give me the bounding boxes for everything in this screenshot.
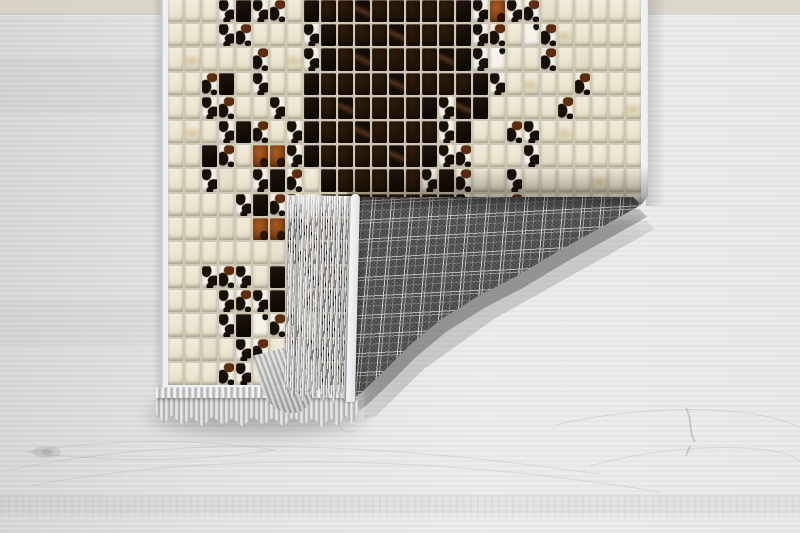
leather-tile-dark <box>422 73 437 95</box>
leather-tile-cream <box>253 97 268 119</box>
leather-tile-dark <box>406 97 421 119</box>
leather-tile-dark <box>439 24 454 46</box>
leather-tile-cream <box>202 290 217 312</box>
leather-tile-cream <box>626 121 641 143</box>
leather-tile-cream <box>168 48 183 70</box>
leather-tile-cream <box>592 0 607 22</box>
leather-tile-dark <box>321 73 336 95</box>
leather-tile-dark <box>422 48 437 70</box>
leather-tile-spotB <box>219 97 234 119</box>
leather-tile-black <box>202 145 217 167</box>
leather-tile-spotA <box>253 290 268 312</box>
leather-tile-cream <box>168 0 183 22</box>
leather-tile-cream <box>168 290 183 312</box>
leather-tile-cream <box>185 266 200 288</box>
leather-tile-cream <box>185 73 200 95</box>
leather-tile-cream <box>270 121 285 143</box>
leather-tile-cream <box>541 73 556 95</box>
leather-tile-dark <box>355 24 370 46</box>
leather-tile-black <box>304 145 319 167</box>
leather-tile-cream <box>626 24 641 46</box>
leather-tile-dark <box>456 73 471 95</box>
leather-tile-cream2 <box>575 48 590 70</box>
leather-tile-streak <box>338 97 353 119</box>
leather-tile-cream <box>507 48 522 70</box>
leather-tile-cream <box>609 0 624 22</box>
leather-tile-cream <box>202 218 217 240</box>
leather-tile-cream <box>202 121 217 143</box>
leather-tile-dark <box>406 24 421 46</box>
leather-tile-cream <box>202 194 217 216</box>
leather-tile-cream <box>168 145 183 167</box>
leather-tile-spotB <box>541 24 556 46</box>
leather-tile-cream <box>185 0 200 22</box>
leather-tile-spotA <box>236 194 251 216</box>
leather-tile-brown <box>253 218 268 240</box>
leather-tile-dark <box>338 73 353 95</box>
leather-tile-spotA <box>270 97 285 119</box>
leather-tile-black <box>304 73 319 95</box>
leather-tile-black <box>236 121 251 143</box>
leather-tile-dark <box>406 145 421 167</box>
leather-tile-cream <box>185 194 200 216</box>
leather-tile-cream <box>287 97 302 119</box>
leather-tile-cream <box>270 24 285 46</box>
leather-tile-cream <box>592 24 607 46</box>
leather-tile-cream <box>168 266 183 288</box>
rug-right-edge-shadow <box>646 0 666 206</box>
leather-tile-cream <box>185 290 200 312</box>
leather-tile-dark <box>372 24 387 46</box>
leather-tile-spotA <box>304 24 319 46</box>
leather-tile-cream <box>558 145 573 167</box>
leather-tile-dark <box>406 73 421 95</box>
leather-tile-cream <box>253 242 268 264</box>
leather-tile-streak <box>355 48 370 70</box>
leather-tile-spotA <box>202 169 217 191</box>
leather-tile-black <box>304 121 319 143</box>
leather-tile-spotB <box>541 48 556 70</box>
leather-tile-cream <box>524 97 539 119</box>
leather-tile-cream <box>168 24 183 46</box>
leather-tile-cream2 <box>219 169 234 191</box>
leather-tile-cream <box>202 48 217 70</box>
leather-tile-spotB <box>456 145 471 167</box>
leather-tile-streak <box>439 48 454 70</box>
leather-tile-cream <box>626 48 641 70</box>
leather-tile-spotA <box>219 121 234 143</box>
leather-tile-spotA <box>253 0 268 22</box>
leather-tile-cream <box>168 194 183 216</box>
leather-tile-dark <box>372 97 387 119</box>
leather-tile-spotA <box>202 266 217 288</box>
leather-tile-white <box>253 314 268 336</box>
leather-tile-black <box>456 24 471 46</box>
leather-tile-streak <box>389 24 404 46</box>
leather-tile-dark <box>439 0 454 22</box>
leather-tile-cream <box>202 314 217 336</box>
leather-tile-brown <box>270 218 285 240</box>
leather-tile-spotA <box>473 24 488 46</box>
leather-tile-cream <box>219 48 234 70</box>
leather-tile-spotA <box>287 121 302 143</box>
leather-tile-cream <box>592 73 607 95</box>
leather-tile-cream2 <box>541 0 556 22</box>
leather-tile-spotA <box>304 48 319 70</box>
leather-tile-cream <box>304 169 319 191</box>
leather-tile-dark <box>372 73 387 95</box>
leather-tile-cream <box>185 242 200 264</box>
leather-tile-cream <box>473 145 488 167</box>
leather-tile-spotA <box>439 121 454 143</box>
leather-tile-dark <box>372 145 387 167</box>
leather-tile-cream <box>609 121 624 143</box>
leather-tile-cream <box>507 145 522 167</box>
leather-tile-cream <box>473 121 488 143</box>
leather-tile-cream <box>185 218 200 240</box>
leather-tile-spotA <box>202 97 217 119</box>
leather-tile-white <box>524 24 539 46</box>
leather-tile-cream <box>507 97 522 119</box>
leather-tile-spotB <box>253 121 268 143</box>
leather-tile-cream <box>185 339 200 361</box>
leather-tile-dark <box>372 48 387 70</box>
leather-tile-black <box>422 145 437 167</box>
leather-tile-cream <box>626 145 641 167</box>
leather-tile-spotB <box>253 48 268 70</box>
leather-tile-dark <box>406 48 421 70</box>
leather-tile-spotA <box>219 24 234 46</box>
leather-tile-cream2 <box>541 145 556 167</box>
leather-tile-cream <box>592 97 607 119</box>
leather-tile-black <box>304 97 319 119</box>
leather-tile-spotB <box>490 24 505 46</box>
leather-tile-dark <box>389 0 404 22</box>
leather-tile-cream <box>253 24 268 46</box>
leather-tile-cream <box>185 145 200 167</box>
leather-tile-dark <box>389 48 404 70</box>
leather-tile-streak <box>355 0 370 22</box>
leather-tile-spotA <box>473 48 488 70</box>
leather-tile-cream <box>575 145 590 167</box>
leather-tile-spotB <box>524 0 539 22</box>
leather-tile-black <box>270 290 285 312</box>
leather-tile-cream <box>626 0 641 22</box>
leather-tile-cream2 <box>219 218 234 240</box>
leather-tile-cream <box>168 73 183 95</box>
leather-tile-cream <box>236 73 251 95</box>
leather-tile-spotB <box>558 97 573 119</box>
leather-tile-dark <box>422 121 437 143</box>
leather-tile-cream <box>609 48 624 70</box>
leather-tile-spotB <box>270 194 285 216</box>
leather-tile-stain <box>185 121 200 143</box>
leather-tile-streak <box>456 97 471 119</box>
leather-tile-spotA <box>253 73 268 95</box>
leather-tile-spotA <box>219 314 234 336</box>
leather-tile-black <box>253 194 268 216</box>
leather-tile-dark <box>338 145 353 167</box>
leather-tile-cream <box>575 0 590 22</box>
leather-tile-cream <box>236 242 251 264</box>
leather-tile-cream <box>575 121 590 143</box>
leather-tile-cream <box>287 73 302 95</box>
leather-tile-spotB <box>219 145 234 167</box>
leather-tile-cream <box>219 194 234 216</box>
leather-tile-cream <box>609 97 624 119</box>
leather-tile-black <box>236 0 251 22</box>
leather-tile-spotA <box>473 0 488 22</box>
leather-tile-black <box>321 169 336 191</box>
leather-tile-dark <box>355 145 370 167</box>
leather-tile-dark <box>338 121 353 143</box>
leather-tile-spotA <box>439 145 454 167</box>
leather-tile-dark <box>355 97 370 119</box>
leather-tile-dark <box>321 121 336 143</box>
leather-tile-dark <box>422 24 437 46</box>
leather-tile-dark <box>338 0 353 22</box>
leather-tile-dark <box>406 0 421 22</box>
leather-tile-stain <box>626 97 641 119</box>
leather-tile-cream <box>558 73 573 95</box>
leather-tile-brown <box>253 145 268 167</box>
leather-tile-cream <box>541 121 556 143</box>
leather-tile-spotA <box>236 339 251 361</box>
leather-tile-cream <box>219 339 234 361</box>
leather-tile-cream <box>168 314 183 336</box>
leather-tile-black <box>219 73 234 95</box>
leather-tile-cream <box>490 97 505 119</box>
leather-tile-cream <box>219 242 234 264</box>
leather-tile-spotA <box>253 169 268 191</box>
leather-tile-cream <box>168 363 183 385</box>
leather-tile-cream <box>287 0 302 22</box>
leather-tile-spotA <box>236 363 251 385</box>
leather-tile-black <box>422 97 437 119</box>
leather-tile-cream <box>236 97 251 119</box>
leather-tile-stain <box>524 73 539 95</box>
leather-tile-cream <box>253 266 268 288</box>
leather-tile-cream <box>168 97 183 119</box>
leather-tile-spotA <box>490 73 505 95</box>
leather-tile-spotA <box>439 97 454 119</box>
leather-tile-cream <box>185 314 200 336</box>
leather-tile-spotB <box>219 363 234 385</box>
leather-tile-cream <box>558 0 573 22</box>
leather-tile-spotB <box>202 73 217 95</box>
rug-left-edge-shadow <box>152 0 162 392</box>
leather-tile-brown <box>270 145 285 167</box>
leather-tile-cream <box>236 218 251 240</box>
leather-tile-black <box>456 0 471 22</box>
leather-tile-spotA <box>507 0 522 22</box>
leather-tile-streak <box>389 73 404 95</box>
leather-tile-spotA <box>524 145 539 167</box>
leather-tile-cream <box>558 48 573 70</box>
leather-tile-dark <box>372 121 387 143</box>
leather-tile-brown <box>490 0 505 22</box>
leather-tile-black <box>270 266 285 288</box>
leather-tile-stain <box>558 24 573 46</box>
leather-tile-cream <box>507 24 522 46</box>
leather-tile-cream <box>541 97 556 119</box>
leather-tile-cream <box>185 24 200 46</box>
leather-tile-dark <box>338 24 353 46</box>
leather-tile-black <box>321 24 336 46</box>
leather-tile-black <box>473 97 488 119</box>
leather-tile-cream <box>287 24 302 46</box>
leather-tile-dark <box>355 73 370 95</box>
leather-tile-spotA <box>219 0 234 22</box>
leather-tile-cream <box>609 73 624 95</box>
leather-tile-cream <box>270 73 285 95</box>
leather-tile-dark <box>321 97 336 119</box>
leather-tile-cream <box>592 48 607 70</box>
leather-tile-cream <box>202 363 217 385</box>
leather-tile-cream <box>626 73 641 95</box>
leather-tile-white <box>490 48 505 70</box>
leather-tile-dark <box>422 0 437 22</box>
leather-tile-cream <box>507 73 522 95</box>
leather-tile-spotB <box>287 169 302 191</box>
leather-tile-dark <box>338 48 353 70</box>
leather-tile-spotB <box>270 314 285 336</box>
leather-tile-stain <box>287 48 302 70</box>
leather-tile-spotB <box>236 290 251 312</box>
leather-tile-cream <box>575 24 590 46</box>
leather-tile-cream <box>168 218 183 240</box>
leather-tile-black <box>270 169 285 191</box>
leather-tile-cream <box>609 145 624 167</box>
fold-edge-fringe <box>284 195 353 404</box>
leather-tile-dark <box>321 0 336 22</box>
leather-tile-stain <box>558 121 573 143</box>
leather-tile-dark <box>321 145 336 167</box>
leather-tile-spotB <box>219 266 234 288</box>
leather-tile-cream <box>490 121 505 143</box>
leather-tile-cream <box>202 24 217 46</box>
leather-tile-cream <box>575 97 590 119</box>
leather-tile-black <box>473 73 488 95</box>
rug-product-photo <box>0 0 800 533</box>
leather-tile-dark <box>389 97 404 119</box>
leather-tile-spotB <box>575 73 590 95</box>
leather-tile-black <box>456 121 471 143</box>
leather-tile-spotA <box>219 290 234 312</box>
leather-tile-dark <box>406 121 421 143</box>
leather-tile-black <box>236 314 251 336</box>
leather-tile-cream <box>236 48 251 70</box>
leather-tile-spotB <box>270 0 285 22</box>
leather-tile-dark <box>439 73 454 95</box>
leather-tile-streak <box>355 121 370 143</box>
leather-tile-cream <box>185 363 200 385</box>
leather-tile-cream <box>270 48 285 70</box>
leather-tile-cream <box>168 169 183 191</box>
leather-tile-black <box>304 0 319 22</box>
leather-tile-cream <box>236 169 251 191</box>
leather-tile-streak <box>389 145 404 167</box>
leather-tile-cream <box>202 242 217 264</box>
leather-tile-cream <box>592 121 607 143</box>
leather-tile-cream <box>168 242 183 264</box>
leather-tile-black <box>321 48 336 70</box>
leather-tile-cream <box>202 0 217 22</box>
leather-tile-spotB <box>236 24 251 46</box>
leather-tile-cream2 <box>270 242 285 264</box>
leather-tile-spotA <box>524 121 539 143</box>
leather-tile-cream <box>609 24 624 46</box>
leather-tile-dark <box>389 121 404 143</box>
leather-tile-cream <box>168 339 183 361</box>
leather-tile-spotB <box>507 121 522 143</box>
leather-tile-cream <box>185 97 200 119</box>
leather-tile-cream <box>524 48 539 70</box>
leather-tile-black <box>456 48 471 70</box>
leather-tile-spotA <box>236 266 251 288</box>
leather-tile-cream2 <box>202 339 217 361</box>
leather-tile-cream <box>236 145 251 167</box>
leather-tile-cream <box>592 145 607 167</box>
leather-tile-cream <box>168 121 183 143</box>
leather-tile-stain <box>185 48 200 70</box>
leather-tile-cream <box>185 169 200 191</box>
leather-tile-cream <box>490 145 505 167</box>
leather-tile-dark <box>372 0 387 22</box>
leather-tile-spotA <box>287 145 302 167</box>
